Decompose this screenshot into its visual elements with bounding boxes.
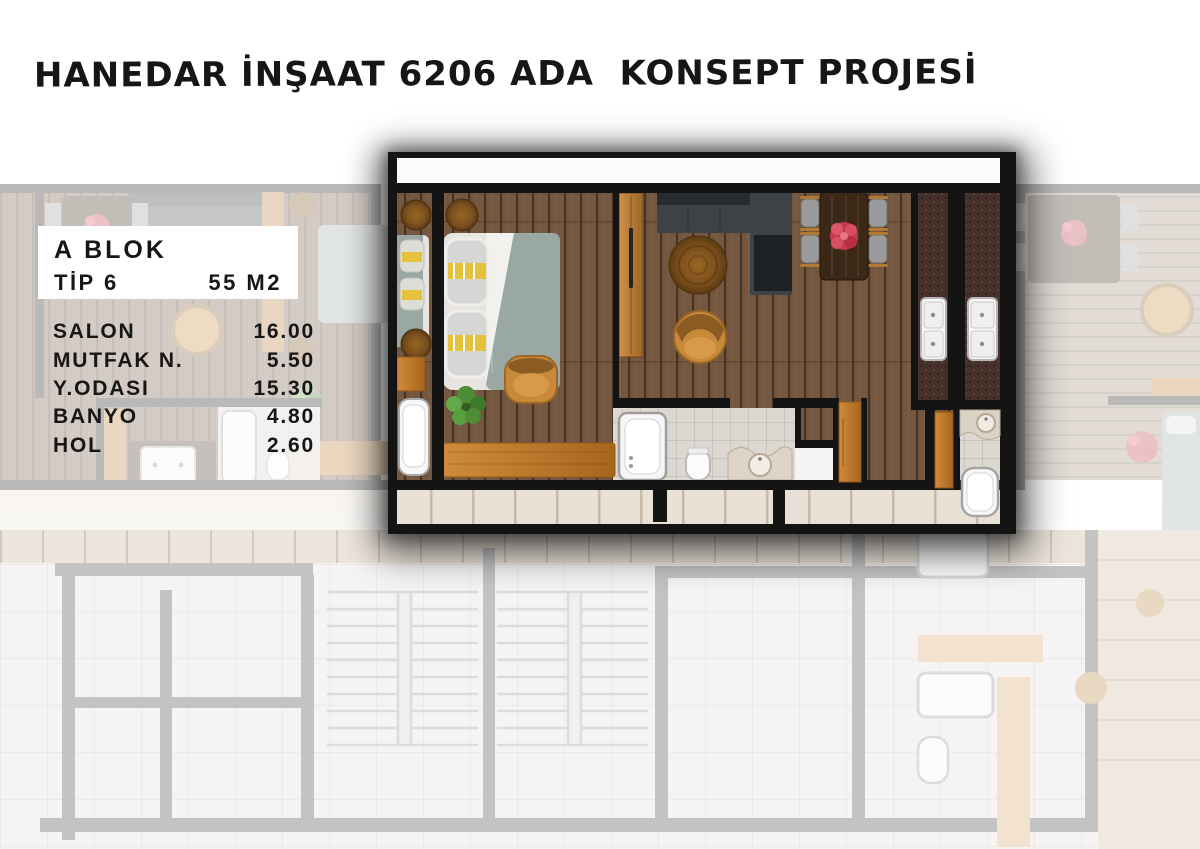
unit-plan-svg [388, 152, 1016, 534]
room-name: MUTFAK N. [53, 349, 184, 373]
unit-info-box: A BLOK TİP 6 55 M2 [38, 226, 298, 299]
corridor-band [397, 490, 1007, 524]
toilet-faded [918, 737, 948, 783]
area-label: 55 M2 [208, 270, 282, 296]
dining-set-faded-right [1016, 195, 1138, 283]
armchair-faded-right [1142, 285, 1192, 335]
entry-door [839, 402, 861, 482]
table-row: HOL 2.60 [53, 432, 315, 460]
wardrobe [619, 193, 643, 357]
room-area-table: SALON 16.00 MUTFAK N. 5.50 Y.ODASI 15.30… [53, 318, 315, 460]
left-sliver-room [397, 200, 431, 475]
salon-armchair [674, 311, 726, 363]
dining-set [800, 192, 888, 280]
hall-floor-faded [918, 635, 1043, 662]
bed-faded-right [1162, 412, 1200, 530]
room-name: BANYO [53, 405, 138, 429]
kitchen-counter [918, 193, 948, 400]
table-row: Y.ODASI 15.30 [53, 375, 315, 403]
room-name: SALON [53, 320, 136, 344]
room-area: 2.60 [267, 434, 315, 458]
wardrobe-handle [629, 228, 633, 288]
bench-faded [318, 441, 398, 475]
niche [795, 448, 833, 480]
pouf [446, 199, 478, 231]
kitchen-sink [968, 298, 997, 360]
kitchen-sink [921, 298, 946, 360]
room-name: HOL [53, 434, 103, 458]
table-row: SALON 16.00 [53, 318, 315, 346]
block-label: A BLOK [54, 236, 282, 265]
highlighted-unit-plan [388, 152, 1016, 534]
room-area: 5.50 [267, 349, 315, 373]
balcony-band [397, 158, 1007, 183]
room-area: 15.30 [253, 377, 315, 401]
room-name: Y.ODASI [53, 377, 150, 401]
page-title: HANEDAR İNŞAAT 6206 ADA KONSEPT PROJESİ [34, 52, 978, 95]
type-label: TİP 6 [54, 270, 119, 296]
round-rug [669, 236, 727, 294]
floorplan-page: HANEDAR İNŞAAT 6206 ADA KONSEPT PROJESİ … [0, 0, 1200, 849]
lower-floorplan [0, 523, 1200, 849]
kitchen-counter [965, 193, 1000, 400]
bathtub-faded-2 [918, 673, 993, 717]
corridor-tiles [0, 530, 1200, 563]
small-bath-door [935, 412, 953, 488]
faded-unit-right [1016, 162, 1200, 530]
table-row: BANYO 4.80 [53, 403, 315, 431]
bedroom-armchair [505, 356, 557, 403]
room-area: 16.00 [253, 320, 315, 344]
table-row: MUTFAK N. 5.50 [53, 346, 315, 374]
bench-dresser [443, 443, 615, 477]
toilet [686, 448, 710, 480]
room-area: 4.80 [267, 405, 315, 429]
bathtub [619, 413, 666, 480]
flower-centerpiece [830, 222, 858, 250]
